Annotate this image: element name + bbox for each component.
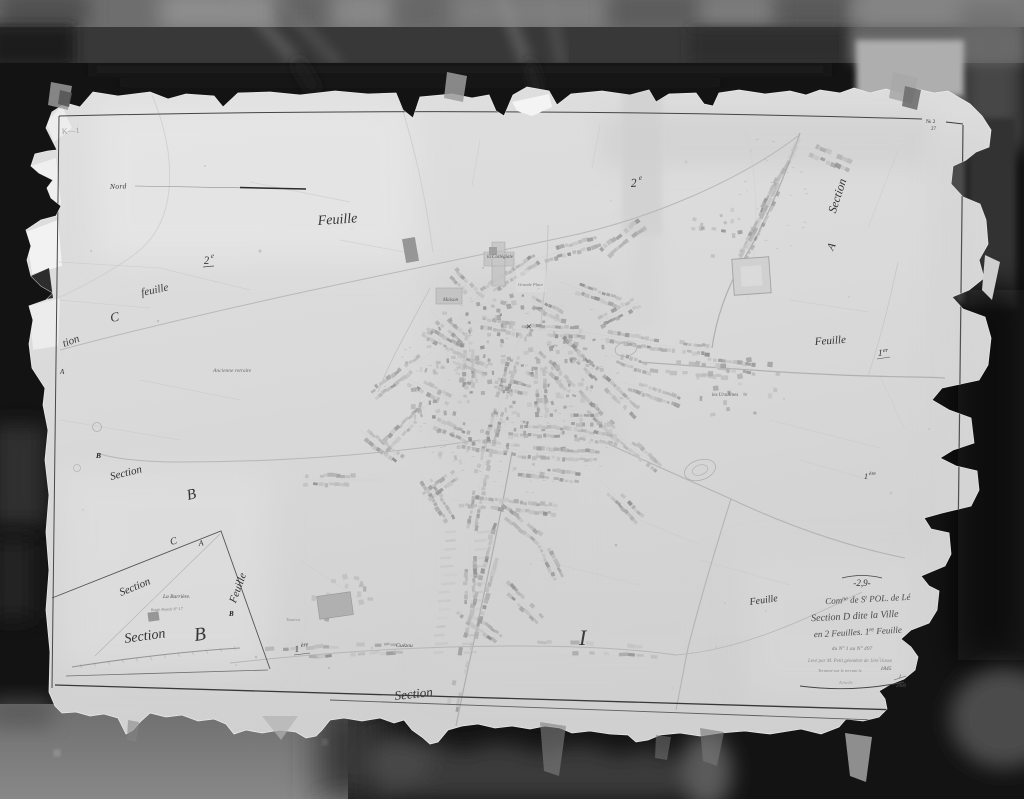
svg-text:1: 1 (899, 674, 902, 680)
svg-text:2: 2 (630, 176, 637, 190)
svg-text:Nord: Nord (109, 181, 127, 191)
svg-text:A: A (59, 368, 65, 376)
svg-text:les Ursulines: les Ursulines (712, 393, 738, 398)
svg-text:-2,9-: -2,9- (853, 578, 870, 588)
svg-text:1: 1 (864, 472, 868, 481)
svg-text:Grande Place: Grande Place (518, 282, 543, 287)
svg-text:er: er (883, 348, 889, 354)
svg-text:la Collégiale: la Collégiale (487, 255, 514, 260)
svg-text:2000: 2000 (896, 684, 907, 689)
svg-text:K—1: K—1 (62, 126, 80, 136)
svg-text:Feuille: Feuille (316, 211, 358, 229)
svg-text:ère: ère (300, 642, 309, 649)
svg-text:Terminé sur le terrain le: Terminé sur le terrain le (818, 668, 862, 673)
svg-text:№ 2: № 2 (926, 119, 936, 125)
svg-text:Feuille: Feuille (813, 334, 846, 348)
svg-text:1: 1 (878, 348, 883, 358)
svg-text:ère: ère (869, 471, 876, 477)
svg-text:e: e (211, 252, 215, 260)
svg-text:B: B (95, 451, 101, 460)
svg-text:Ancienne retraite: Ancienne retraite (212, 368, 252, 374)
svg-text:Maison: Maison (442, 298, 459, 303)
svg-text:✕: ✕ (526, 323, 532, 331)
svg-text:Echelle: Echelle (838, 680, 853, 685)
svg-text:La Barrière.: La Barrière. (162, 594, 190, 600)
svg-text:du N° 1 au N° 497: du N° 1 au N° 497 (832, 645, 873, 652)
svg-text:B: B (228, 610, 234, 618)
svg-text:1845: 1845 (881, 665, 892, 672)
svg-text:Guézou: Guézou (396, 643, 413, 649)
svg-text:Levé par M. Petit géomètre de: Levé par M. Petit géomètre de 1ère class… (807, 659, 893, 664)
svg-text:27: 27 (931, 127, 937, 132)
svg-text:Tosarru: Tosarru (286, 617, 301, 622)
